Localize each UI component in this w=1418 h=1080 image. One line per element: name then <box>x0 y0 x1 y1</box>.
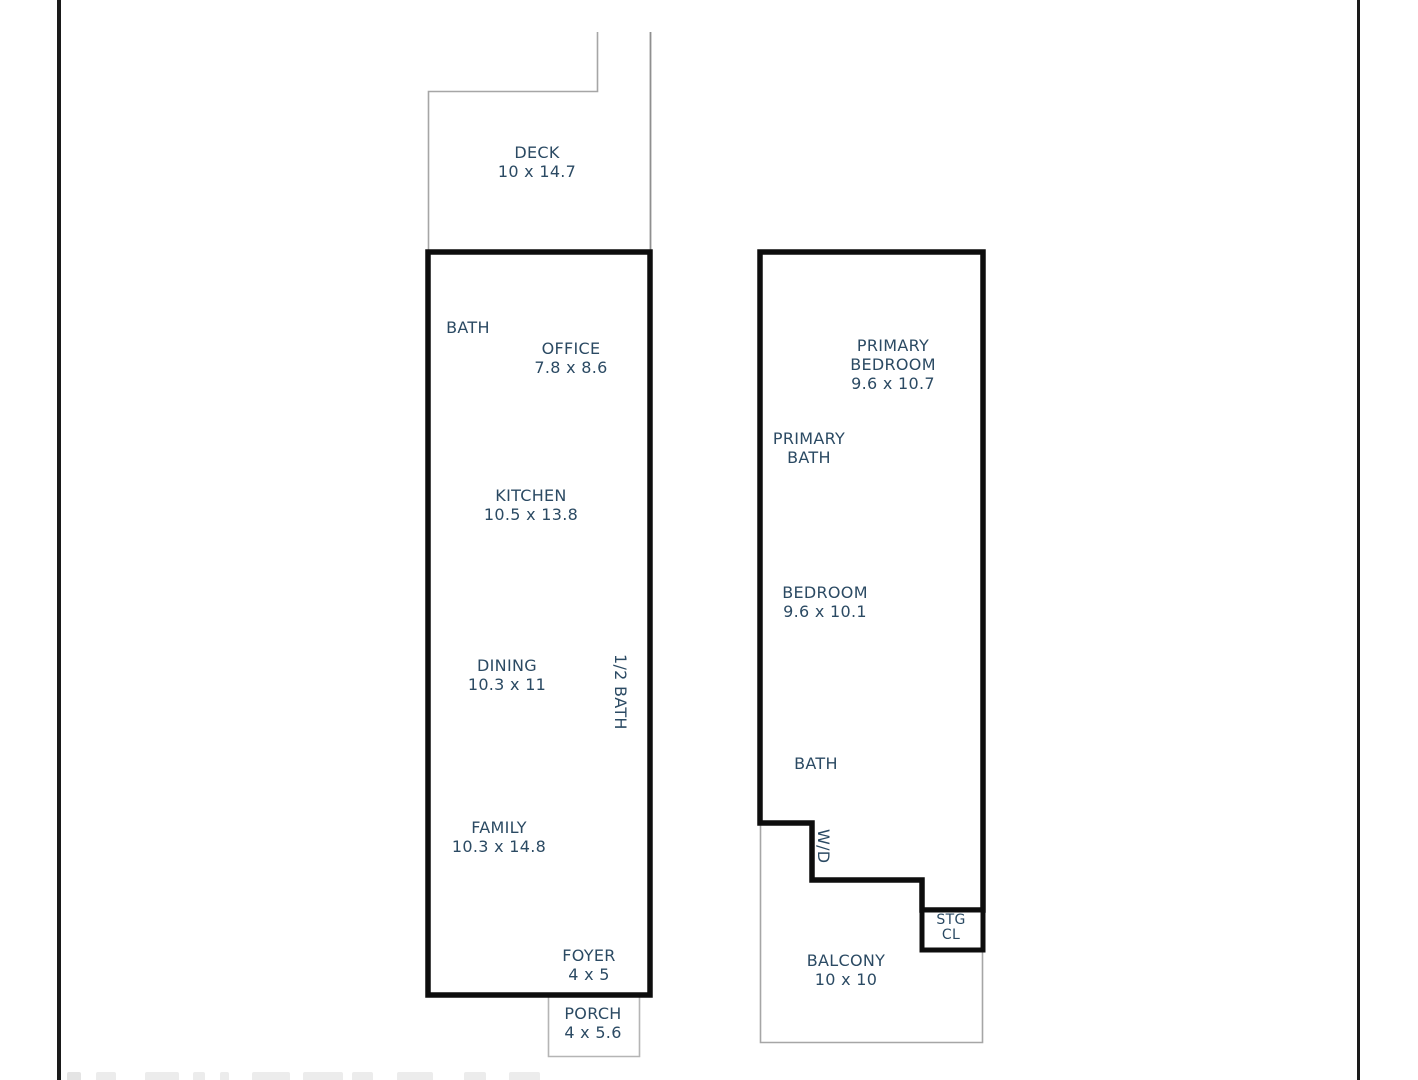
porch-dims: 4 x 5.6 <box>564 1023 621 1042</box>
deck-dims: 10 x 14.7 <box>498 162 576 181</box>
bedroom-dims: 9.6 x 10.1 <box>782 602 868 621</box>
room-label-family: FAMILY 10.3 x 14.8 <box>452 818 546 856</box>
bedroom-name: BEDROOM <box>782 583 868 602</box>
foyer-name: FOYER <box>562 946 615 965</box>
room-label-office: OFFICE 7.8 x 8.6 <box>534 339 607 377</box>
dining-name: DINING <box>468 656 546 675</box>
storage-closet-name-1: STG <box>936 913 965 928</box>
balcony-name: BALCONY <box>807 951 885 970</box>
room-label-washer-dryer: W/D <box>814 829 833 863</box>
primary-bath-name-1: PRIMARY <box>773 429 845 448</box>
balcony-dims: 10 x 10 <box>807 970 885 989</box>
room-label-bath-upper: BATH <box>446 318 490 337</box>
bath-upper-name: BATH <box>446 318 490 337</box>
family-name: FAMILY <box>452 818 546 837</box>
deck-outline <box>429 32 598 252</box>
primary-bedroom-name-2: BEDROOM <box>850 355 936 374</box>
bath-lower-name: BATH <box>794 754 838 773</box>
room-label-storage-closet: STG CL <box>936 913 965 943</box>
room-label-balcony: BALCONY 10 x 10 <box>807 951 885 989</box>
primary-bath-name-2: BATH <box>773 448 845 467</box>
primary-bedroom-dims: 9.6 x 10.7 <box>850 374 936 393</box>
dining-dims: 10.3 x 11 <box>468 675 546 694</box>
family-dims: 10.3 x 14.8 <box>452 837 546 856</box>
room-label-porch: PORCH 4 x 5.6 <box>564 1004 621 1042</box>
primary-bedroom-name-1: PRIMARY <box>850 336 936 355</box>
kitchen-dims: 10.5 x 13.8 <box>484 505 578 524</box>
room-label-deck: DECK 10 x 14.7 <box>498 143 576 181</box>
room-label-kitchen: KITCHEN 10.5 x 13.8 <box>484 486 578 524</box>
deck-name: DECK <box>498 143 576 162</box>
floor-plan-page: DECK 10 x 14.7 BATH OFFICE 7.8 x 8.6 KIT… <box>0 0 1418 1080</box>
office-name: OFFICE <box>534 339 607 358</box>
room-label-primary-bedroom: PRIMARY BEDROOM 9.6 x 10.7 <box>850 336 936 393</box>
foyer-dims: 4 x 5 <box>562 965 615 984</box>
left-frame-line <box>57 0 61 1080</box>
room-label-dining: DINING 10.3 x 11 <box>468 656 546 694</box>
office-dims: 7.8 x 8.6 <box>534 358 607 377</box>
porch-name: PORCH <box>564 1004 621 1023</box>
storage-closet-name-2: CL <box>936 928 965 943</box>
right-frame-line <box>1357 0 1360 1080</box>
room-label-bedroom: BEDROOM 9.6 x 10.1 <box>782 583 868 621</box>
room-label-foyer: FOYER 4 x 5 <box>562 946 615 984</box>
room-label-bath-lower: BATH <box>794 754 838 773</box>
floor-plan-linework <box>0 0 1418 1080</box>
kitchen-name: KITCHEN <box>484 486 578 505</box>
room-label-primary-bath: PRIMARY BATH <box>773 429 845 467</box>
room-label-half-bath: 1/2 BATH <box>611 654 630 730</box>
